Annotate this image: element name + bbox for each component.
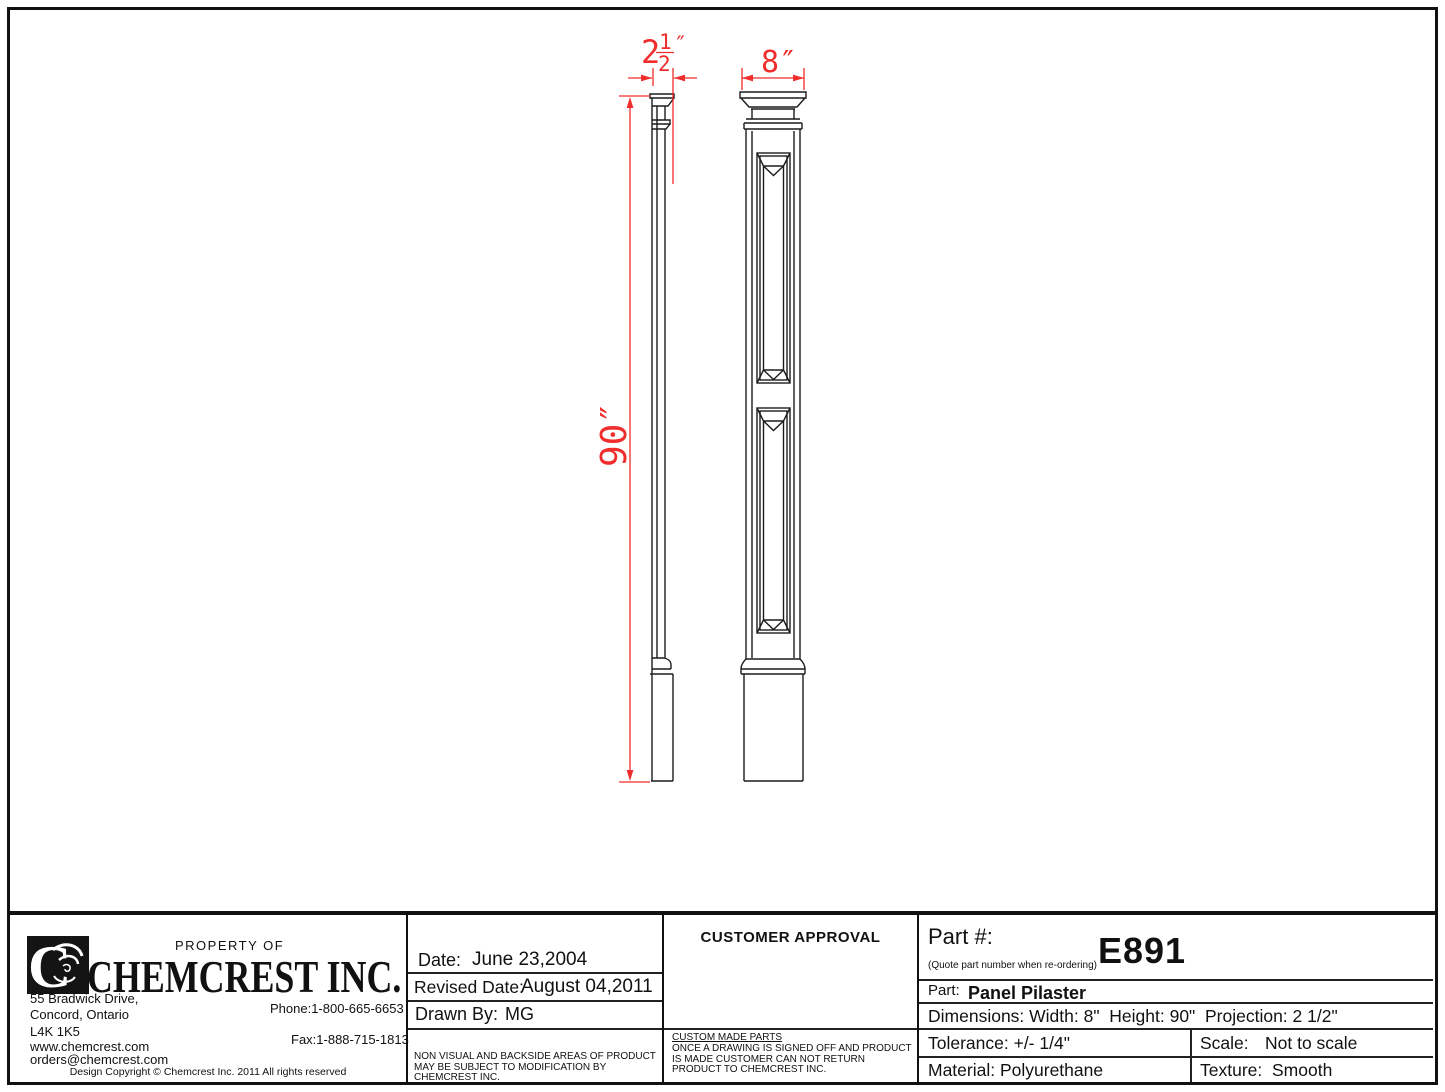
part-name: Panel Pilaster <box>968 983 1086 1004</box>
address-postal: L4K 1K5 <box>30 1024 80 1039</box>
part-number-label: Part #: <box>928 924 993 950</box>
custom-parts-note: ONCE A DRAWING IS SIGNED OFF AND PRODUCT… <box>672 1044 917 1076</box>
drawn-by-value: MG <box>505 1004 534 1025</box>
customer-approval-title: CUSTOMER APPROVAL <box>664 929 917 946</box>
revised-date-label: Revised Date: <box>414 977 524 998</box>
phone-text: Phone:1-800-665-6653 <box>270 1001 404 1016</box>
date-row-line <box>408 972 662 974</box>
part-number-value: E891 <box>1098 930 1186 972</box>
part-label: Part: <box>928 982 960 999</box>
dimension-projection: 2 1 2 ″ <box>628 30 697 184</box>
dimension-width: 8″ <box>742 45 804 90</box>
drawn-by-label: Drawn By: <box>415 1004 498 1025</box>
drawn-row-line <box>408 1028 662 1030</box>
revised-row-line <box>408 1000 662 1002</box>
dimensions-text: Dimensions: Width: 8" Height: 90" Projec… <box>928 1006 1338 1027</box>
texture-value: Smooth <box>1272 1060 1332 1081</box>
drawing-sheet: 90″ 2 1 2 ″ 8″ <box>0 0 1445 1092</box>
address-line1: 55 Bradwick Drive, <box>30 991 138 1006</box>
dims-row-line <box>919 1028 1433 1030</box>
scale-value: Not to scale <box>1265 1033 1357 1054</box>
custom-parts-title: CUSTOM MADE PARTS <box>672 1032 782 1043</box>
projection-unit: ″ <box>674 33 687 58</box>
pilaster-side-view <box>650 94 674 781</box>
revised-date-value: August 04,2011 <box>521 976 653 998</box>
scale-label: Scale: <box>1200 1033 1249 1054</box>
upper-panel <box>757 153 790 383</box>
width-dim-label: 8″ <box>761 45 797 80</box>
chemcrest-logo: C <box>27 936 89 994</box>
tolerance-text: Tolerance: +/- 1/4" <box>928 1033 1070 1054</box>
date-value: June 23,2004 <box>472 949 587 971</box>
pilaster-drawing: 90″ 2 1 2 ″ 8″ <box>0 0 1445 910</box>
height-dim-label: 90″ <box>594 402 635 467</box>
scale-col-divider <box>1190 1028 1192 1082</box>
material-text: Material: Polyurethane <box>928 1060 1103 1081</box>
texture-label: Texture: <box>1200 1060 1262 1081</box>
partno-row-line <box>919 979 1433 981</box>
tolerance-row-line <box>919 1056 1433 1058</box>
pilaster-front-view <box>740 92 806 781</box>
projection-denominator: 2 <box>658 52 671 76</box>
lower-panel <box>757 408 790 633</box>
dimension-height: 90″ <box>594 96 650 782</box>
date-label: Date: <box>418 950 461 971</box>
part-number-hint: (Quote part number when re-ordering) <box>928 960 1097 971</box>
modification-note: NON VISUAL AND BACKSIDE AREAS OF PRODUCT… <box>414 1052 664 1084</box>
titleblock-top-border <box>10 911 1435 915</box>
copyright-text: Design Copyright © Chemcrest Inc. 2011 A… <box>10 1066 406 1078</box>
projection-numerator: 1 <box>659 30 672 54</box>
fax-text: Fax:1-888-715-1813 <box>291 1032 409 1047</box>
address-line2: Concord, Ontario <box>30 1007 129 1022</box>
approval-row-line <box>664 1028 917 1030</box>
email-text: orders@chemcrest.com <box>30 1052 168 1067</box>
titleblock-divider-1 <box>406 915 408 1082</box>
